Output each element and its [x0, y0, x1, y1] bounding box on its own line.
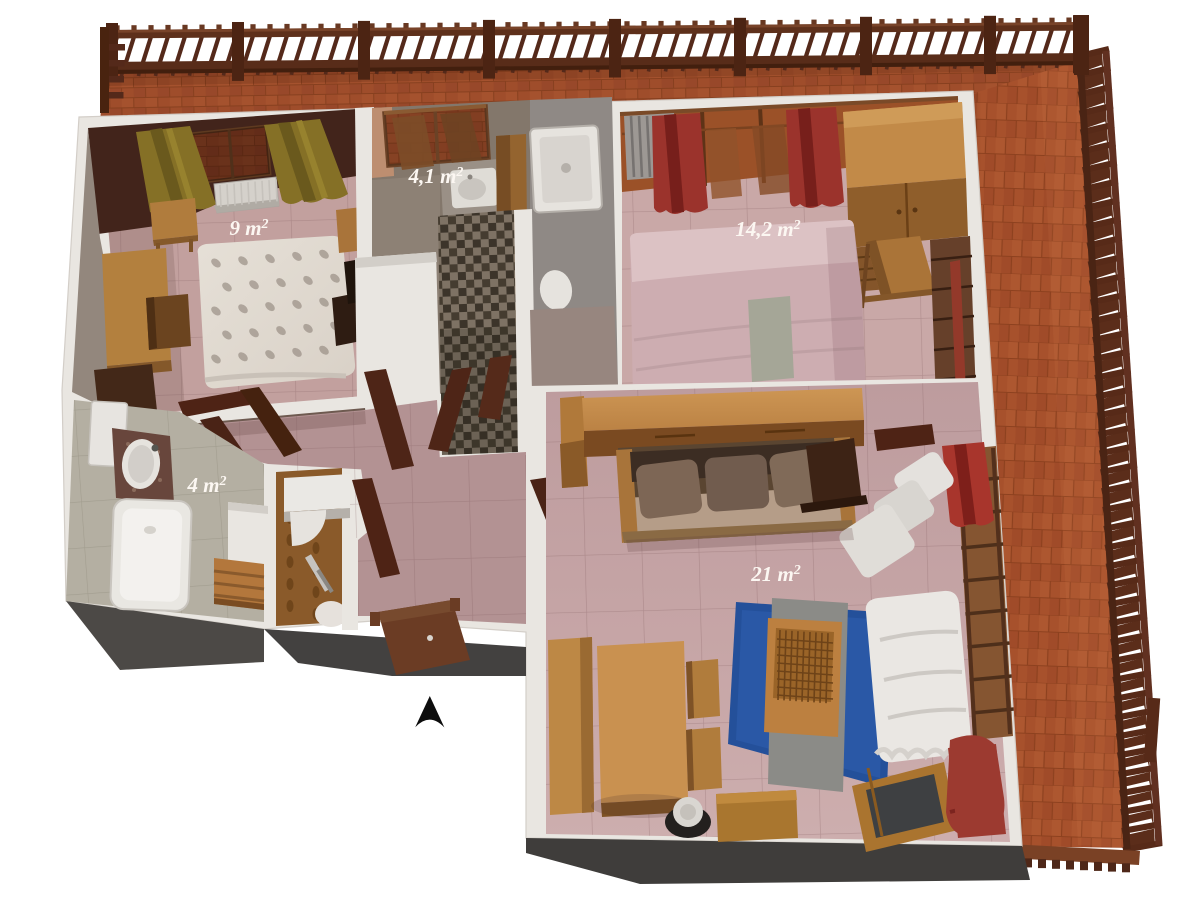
svg-text:14,2 m2: 14,2 m2 — [735, 217, 800, 241]
svg-text:4,1 m2: 4,1 m2 — [408, 164, 464, 188]
svg-text:21 m2: 21 m2 — [750, 562, 801, 586]
